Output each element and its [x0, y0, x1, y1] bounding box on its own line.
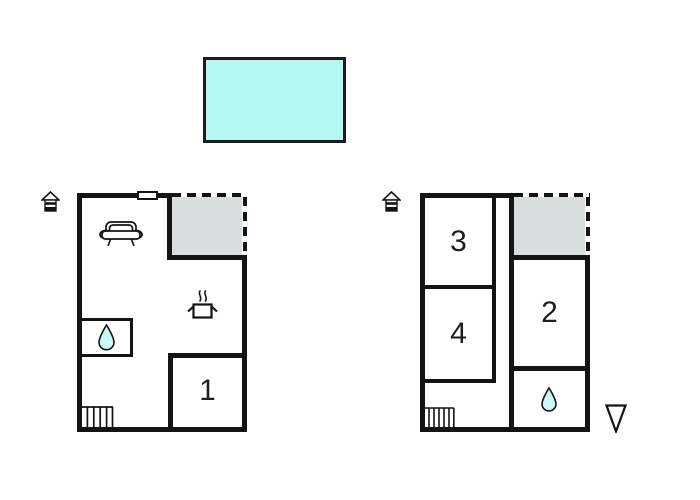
- room4-wall-bottom: [420, 379, 496, 383]
- water-drop-icon: [541, 387, 557, 412]
- terrace-dashed-edge-top: [172, 193, 247, 197]
- terrace-wall-bottom: [167, 255, 247, 260]
- room2-label: 2: [514, 260, 585, 366]
- room1-label: 1: [173, 358, 242, 424]
- wall-bottom: [420, 427, 590, 432]
- terrace: [172, 197, 242, 255]
- swimming-pool: [203, 57, 346, 143]
- sofa-icon: [99, 220, 143, 248]
- terrace-dashed-edge-right: [586, 197, 590, 255]
- stairs-icon: [423, 407, 455, 427]
- window: [137, 191, 158, 200]
- room2-wall-bottom: [514, 366, 590, 371]
- stairs-icon: [80, 406, 114, 427]
- terrace-dashed-edge-right: [243, 197, 247, 255]
- floor-plan-canvas: 1: [0, 0, 700, 500]
- terrace: [514, 197, 585, 255]
- water-drop-icon: [98, 324, 115, 351]
- wall-right: [585, 256, 590, 432]
- bathroom-box: [79, 318, 133, 357]
- room3-label: 3: [425, 198, 492, 285]
- stove-pot-icon: [185, 288, 220, 322]
- house-icon: [382, 191, 401, 212]
- floor-plan-right: 3 4 2: [420, 193, 590, 432]
- wall-right: [242, 256, 247, 432]
- room4-label: 4: [425, 289, 492, 379]
- house-icon: [41, 191, 60, 212]
- floor-plan-left: 1: [77, 193, 247, 432]
- terrace-wall-left: [167, 193, 172, 260]
- direction-triangle-icon: [605, 404, 627, 433]
- wall-bottom: [77, 427, 247, 432]
- wall-left: [77, 193, 82, 432]
- terrace-dashed-edge-top: [514, 193, 590, 197]
